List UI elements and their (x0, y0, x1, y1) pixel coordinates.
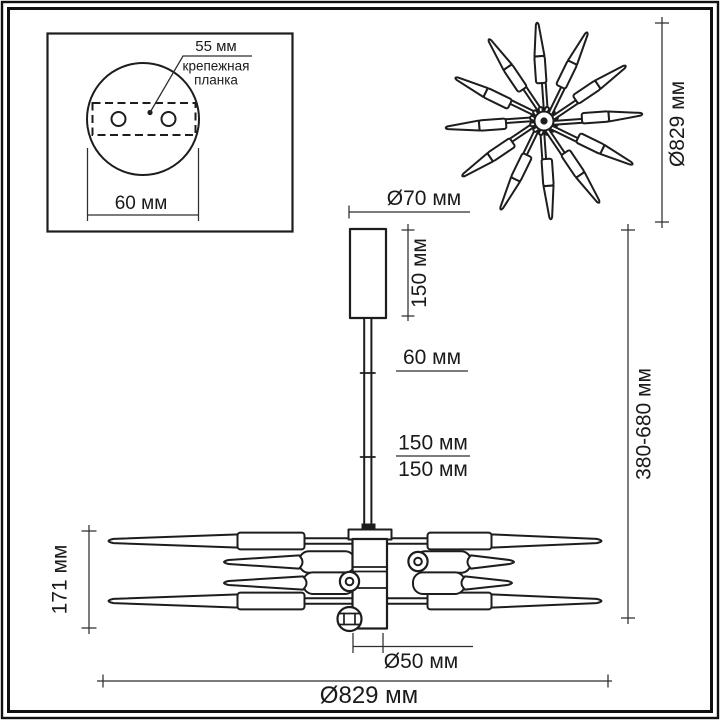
arm-cone (491, 594, 602, 607)
tube-end-cap-ring-inner (414, 558, 422, 566)
mount-plate-inset: 55 мм крепежная планка 60 мм (48, 34, 293, 232)
tube-end-cap-ring-inner (346, 578, 354, 586)
arm-cone (109, 534, 240, 547)
hole-spacing-label: 55 мм (195, 38, 236, 55)
arm-shade-tube (238, 533, 305, 550)
arm-shade-tube (428, 533, 492, 550)
fixture-diameter-dimension: Ø829 мм (97, 675, 612, 710)
top-view-starburst: Ø829 мм (445, 17, 689, 228)
hub-diameter-dimension: Ø50 мм (353, 633, 473, 673)
canopy-diameter-label: Ø70 мм (387, 187, 461, 210)
ceiling-canopy (350, 229, 386, 318)
rod-segment1-label: 60 мм (403, 346, 461, 369)
technical-drawing-page: 55 мм крепежная планка 60 мм Ø829 мм (0, 0, 720, 720)
canopy-diameter-dimension: Ø70 мм (349, 187, 470, 219)
drawing-canvas: 55 мм крепежная планка 60 мм Ø829 мм (0, 0, 720, 720)
canopy-top-view-circle (87, 63, 199, 175)
rod-segment2-label: 150 мм (398, 432, 468, 455)
top-view-diameter-dimension: Ø829 мм (655, 17, 689, 228)
rod-segment3-label: 150 мм (398, 458, 468, 481)
screw-hole-right (162, 112, 176, 126)
arm-rod (300, 598, 355, 603)
arm-shade-tube (413, 572, 465, 594)
rod-segment23-dimension: 150 мм 150 мм (396, 432, 470, 482)
fixture-diameter-label: Ø829 мм (320, 682, 418, 709)
screw-hole-left (112, 112, 126, 126)
arm-cone (224, 576, 307, 589)
rod-segment1-dimension: 60 мм (396, 346, 468, 371)
arm-rod (300, 538, 355, 543)
top-view-diameter-label: Ø829 мм (666, 81, 689, 167)
height-range-dimension: 380-680 мм (621, 224, 656, 624)
mounting-plate-note-line1: крепежная (183, 59, 250, 74)
arm-cone (468, 555, 515, 568)
arm-shade-tube (428, 593, 492, 610)
arm-rod (385, 598, 431, 603)
side-view: Ø70 мм 150 мм 60 мм 150 мм 150 мм 380-68… (49, 187, 656, 709)
stem-rod (364, 318, 371, 530)
mounting-plate-note-line2: планка (194, 73, 238, 88)
arm-cone (491, 534, 602, 547)
arm-shade-tube (299, 551, 355, 573)
canopy-height-label: 150 мм (408, 238, 431, 308)
finial-knob (338, 607, 362, 631)
arm-cone (462, 576, 513, 589)
fixture-height-label: 171 мм (49, 545, 72, 615)
fixture-height-dimension: 171 мм (49, 525, 97, 634)
plate-width-label: 60 мм (115, 193, 168, 214)
height-range-label: 380-680 мм (633, 368, 656, 480)
starburst-center-dot (540, 117, 547, 124)
arm-cone (109, 594, 240, 607)
arm-shade-tube (238, 593, 305, 610)
arm-cone (224, 555, 303, 568)
canopy-height-dimension: 150 мм (402, 224, 432, 321)
hub-diameter-label: Ø50 мм (384, 650, 458, 673)
